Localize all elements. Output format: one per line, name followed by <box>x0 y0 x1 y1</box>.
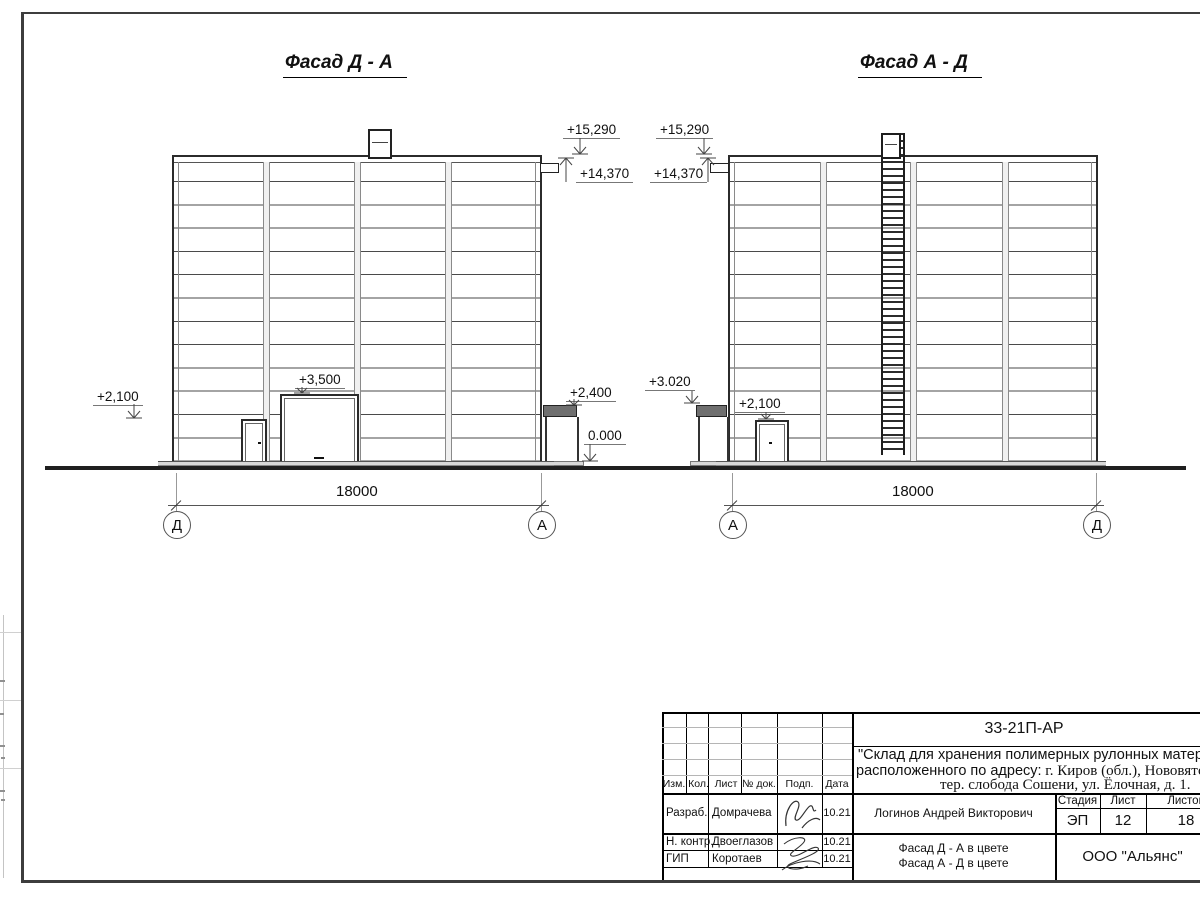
elevation-arrow-down-icon <box>294 387 310 395</box>
dimension-line <box>168 505 549 506</box>
doc-number: 33-21П-АР <box>852 712 1196 746</box>
col-header-data: Дата <box>822 775 852 793</box>
sheets-total: 18 <box>1146 808 1200 833</box>
elevation-arrow-down-icon <box>684 391 700 405</box>
vestibule-body <box>698 417 729 463</box>
ground-line <box>45 466 1186 470</box>
elevation-arrow-down-icon <box>126 404 142 420</box>
vestibule-body <box>545 417 579 463</box>
elevation-arrow-up-icon <box>558 156 574 182</box>
axis-bubble: А <box>719 511 747 539</box>
row-date: 10.21 <box>822 850 852 867</box>
signature-icon <box>778 834 824 876</box>
wall-pipe <box>540 163 559 173</box>
elevation-mark: +3.020 <box>645 374 695 391</box>
mullion <box>445 162 452 463</box>
facade-right-title: Фасад А - Д <box>858 52 982 78</box>
company-name: ООО "Альянс" <box>1055 833 1200 880</box>
left-edge-artifact <box>0 680 5 682</box>
mullion <box>263 162 270 463</box>
axis-bubble: Д <box>163 511 191 539</box>
door-handle <box>769 442 772 444</box>
row-role: Н. контр. <box>666 833 708 850</box>
elevation-mark: 0.000 <box>584 428 626 445</box>
row-role: Разраб. <box>666 793 708 833</box>
col-header-podp: Подп. <box>777 775 822 793</box>
door <box>241 419 267 467</box>
corner-line <box>535 162 536 463</box>
gate-handle <box>314 457 324 459</box>
col-header-kol: Кол. <box>686 775 711 793</box>
stage-header: Стадия <box>1055 793 1100 808</box>
row-name: Двоеглазов <box>712 833 776 850</box>
sheet-title-line2: Фасад А - Д в цвете <box>852 856 1055 871</box>
gate <box>280 394 359 467</box>
row-name: Коротаев <box>712 850 776 867</box>
axis-bubble: Д <box>1083 511 1111 539</box>
left-edge-artifact <box>0 768 21 769</box>
elevation-arrow-down-icon <box>572 138 588 156</box>
col-header-ndok: № док. <box>741 775 777 793</box>
door-leaf <box>245 423 263 465</box>
ladder-rung <box>885 144 897 145</box>
left-edge-artifact <box>1 799 5 801</box>
elevation-arrow-down-icon <box>696 138 712 156</box>
elevation-mark: +2,100 <box>735 396 785 413</box>
elevation-arrow-down-icon <box>566 399 582 407</box>
mullion <box>820 162 827 463</box>
left-edge-artifact <box>0 790 5 792</box>
left-edge-artifact <box>1 757 5 759</box>
vestibule-roof <box>696 405 727 417</box>
dimension-label: 18000 <box>892 483 934 500</box>
titleblock-border <box>662 712 664 880</box>
fire-ladder <box>881 133 905 455</box>
dimension-line <box>724 505 1104 506</box>
row-name: Домрачева <box>712 793 776 833</box>
corner-line <box>734 162 735 463</box>
titleblock-line <box>662 759 852 760</box>
elevation-mark: +15,290 <box>656 122 713 139</box>
dimension-label: 18000 <box>336 483 378 500</box>
roof-vent <box>368 129 392 159</box>
sheets-total-header: Листов <box>1146 793 1200 808</box>
door-leaf <box>759 424 785 465</box>
drawing-sheet: Фасад Д - А Фасад А - Д +15,290 +14,370 … <box>0 0 1200 900</box>
signature-icon <box>782 796 822 832</box>
elevation-arrow-down-icon <box>582 444 598 463</box>
col-header-list: Лист <box>711 775 741 793</box>
mullion <box>1002 162 1009 463</box>
facade-right-elevation <box>728 155 1098 465</box>
sheet-title: Фасад Д - А в цвете Фасад А - Д в цвете <box>852 841 1055 871</box>
gate-leaf <box>284 398 355 465</box>
left-edge-artifact <box>0 632 21 633</box>
row-role: ГИП <box>666 850 708 867</box>
col-header-izm: Изм. <box>662 775 686 793</box>
titleblock-line <box>662 743 852 744</box>
titleblock-line <box>662 727 852 728</box>
project-description-line3: тер. слобода Сошени, ул. Ёлочная, д. 1. <box>940 777 1190 794</box>
corner-line <box>1091 162 1092 463</box>
door <box>755 420 789 467</box>
left-edge-artifact <box>0 713 4 715</box>
axis-bubble: А <box>528 511 556 539</box>
vent-divider <box>372 142 388 143</box>
elevation-mark: +14,370 <box>576 166 633 183</box>
door-handle <box>258 442 261 444</box>
sheet-title-line1: Фасад Д - А в цвете <box>852 841 1055 856</box>
elevation-arrow-down-icon <box>758 412 774 421</box>
sheet-number: 12 <box>1100 808 1146 833</box>
facade-left-title: Фасад Д - А <box>283 52 407 78</box>
left-edge-artifact <box>0 700 21 701</box>
project-description-line1: "Склад для хранения полимерных рулонных … <box>858 747 1200 762</box>
elevation-arrow-up-icon <box>700 156 716 182</box>
mullion <box>910 162 917 463</box>
sheet-header: Лист <box>1100 793 1146 808</box>
stage-value: ЭП <box>1055 808 1100 833</box>
elevation-mark: +15,290 <box>563 122 620 139</box>
supervisor-name: Логинов Андрей Викторович <box>852 793 1055 833</box>
fire-ladder-top <box>881 133 901 159</box>
row-date: 10.21 <box>822 833 852 850</box>
row-date: 10.21 <box>822 793 852 833</box>
elevation-mark: +14,370 <box>650 166 707 183</box>
corner-line <box>178 162 179 463</box>
left-edge-artifact <box>0 745 5 747</box>
